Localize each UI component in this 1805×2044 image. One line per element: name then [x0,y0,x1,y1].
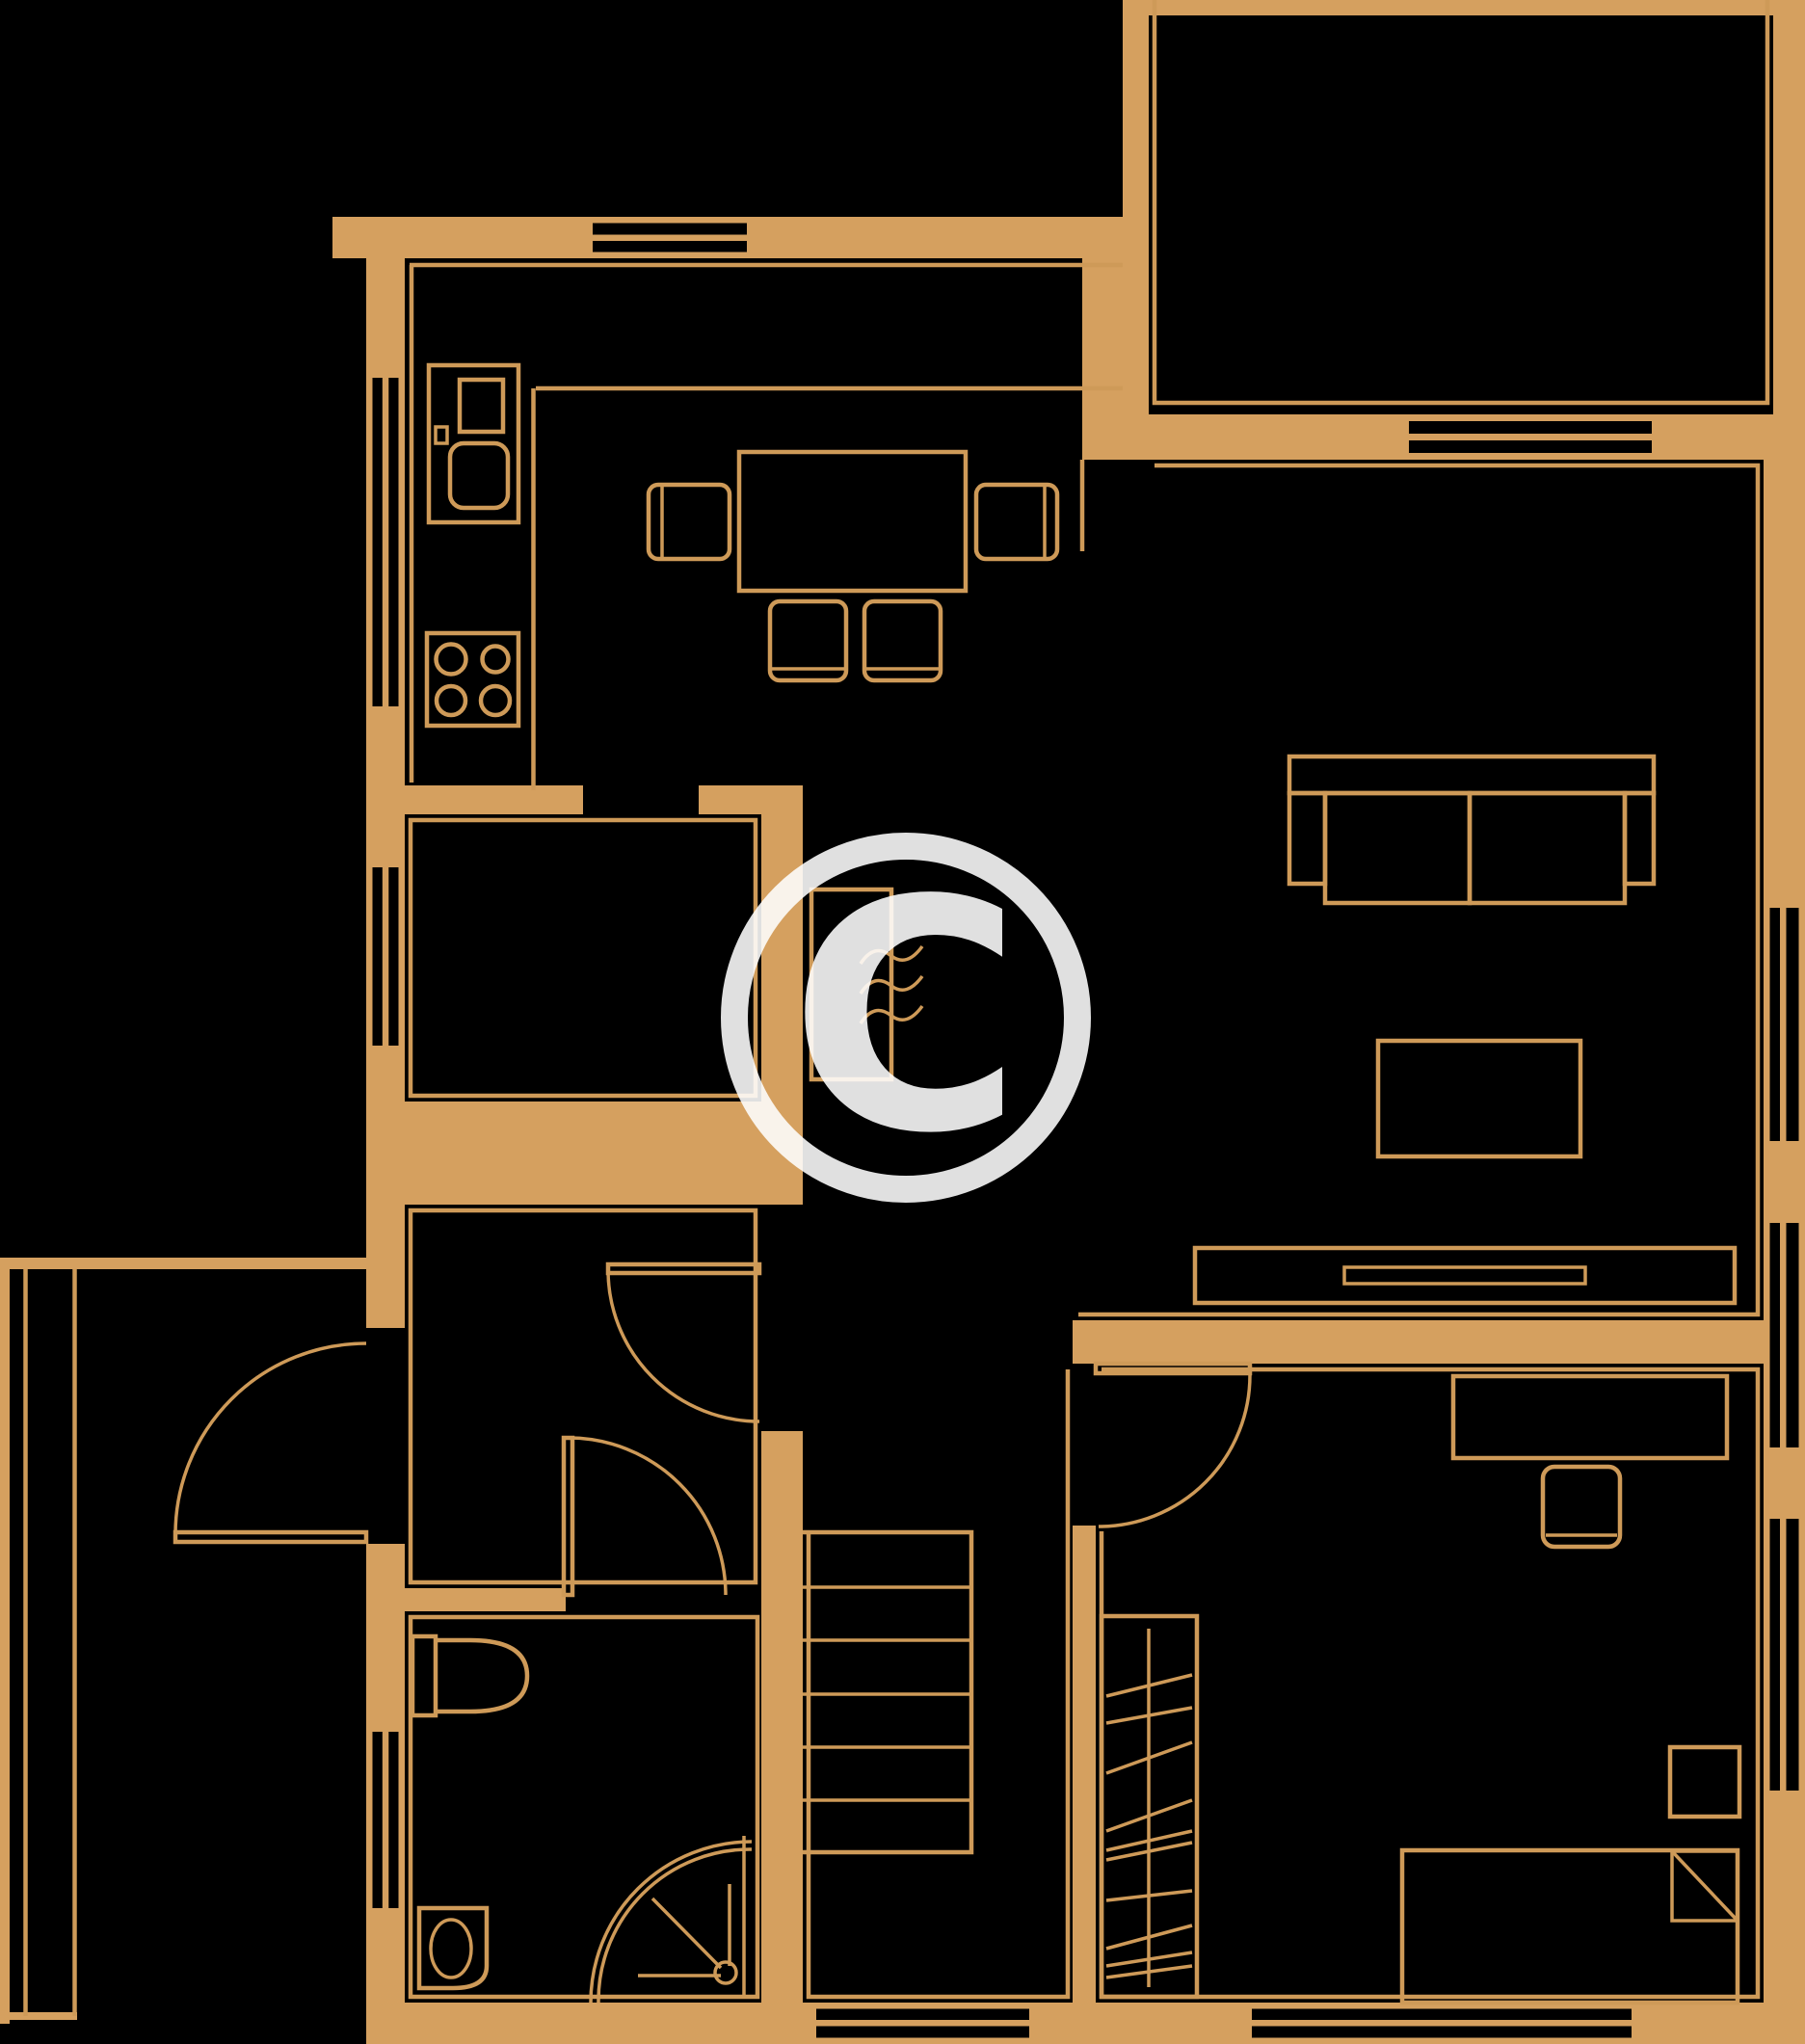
stove [427,633,518,726]
burner [483,647,509,673]
glazing-bar [1409,434,1652,440]
tv-console [1195,1248,1735,1303]
wall-bottom [1029,2003,1252,2044]
wall-right [1764,460,1805,908]
glazing-bar [1780,1519,1787,1791]
sofa-armrest-left [1289,793,1325,884]
glazing-bar [816,2003,1029,2009]
porch-outer-strip [0,1258,10,2024]
living-room-outline [1078,465,1758,1314]
dining-chair-left [649,485,730,559]
wall-right [1764,1447,1805,1519]
wardrobe [1102,1616,1197,1997]
burner [437,686,465,715]
wall-bottom [1632,2003,1805,2044]
window-right-1 [1764,908,1805,1141]
wall-left [366,1908,405,2044]
glazing-bar [593,217,747,224]
door-leaf [608,1264,759,1273]
floor-plan: C [0,0,1805,2044]
wall-left [366,706,405,867]
wall-balcony-top [1123,0,1805,15]
sink-basin [450,443,508,508]
wall-bathroom-top [405,1588,566,1611]
glazing-bar [1252,2020,1632,2027]
coffee-table [1378,1041,1580,1156]
glazing-bar [1764,908,1770,1141]
basin-bowl [431,1920,471,1978]
wall-right [1764,1141,1805,1223]
bathroom [412,1636,752,2003]
door-swing-arc [175,1343,366,1534]
wall-balcony-right [1773,0,1805,460]
glazing-bar [399,867,406,1046]
sofa-seat-right [1470,793,1625,903]
window-bottom-1 [816,2003,1029,2044]
bathroom-outline [411,1617,757,1997]
window-bathroom [366,1732,405,1908]
wall-bedroom-top [1073,1320,1764,1364]
burner [481,686,510,715]
door-leaf [175,1532,366,1542]
window-balcony [1409,414,1652,460]
door-leaf [564,1438,572,1595]
blanket-fold [1672,1851,1738,1921]
glazing-bar [1799,908,1805,1141]
toilet [412,1636,527,1715]
glazing-bar [1764,1223,1770,1447]
glazing-bar [383,1732,389,1908]
shower-hose [652,1898,721,1968]
tv-screen [1344,1267,1585,1284]
toilet-tank [412,1636,436,1715]
dining-set [649,452,1057,680]
corner-shower [591,1836,752,2003]
stairs [803,1532,971,1852]
window-bottom-2 [1252,2003,1632,2044]
burner [437,645,466,675]
wall-central-stub-lower [761,1431,803,2003]
dining-chair-right [976,485,1057,559]
glazing-bar [399,1732,406,1908]
kitchen-sink-unit [429,365,518,522]
glazing-bar [383,867,389,1046]
sofa-backrest [1289,757,1654,793]
tv-console-body [1195,1248,1735,1303]
desk-chair [1543,1467,1620,1547]
stair-treads [803,1587,971,1800]
bedside-table [1670,1747,1739,1817]
hallway-door [608,1264,759,1421]
sink-tap [436,427,447,443]
kitchen [427,365,1057,790]
upper-hall-outline [411,820,756,1096]
bed [1402,1850,1738,2003]
window-top [593,217,747,258]
glazing-bar [1780,908,1787,1141]
watermark-letter: C [789,833,1022,1203]
door-swing-arc [569,1438,726,1595]
sofa-armrest-right [1625,793,1654,884]
stairs-outline [803,1532,971,1852]
window-left-2 [366,867,405,1046]
shower-screen-arc [591,1842,752,2003]
wall-left [366,217,405,378]
shower-drain [715,1962,736,1983]
floor-plan-canvas: C [0,0,1805,2044]
wall-left [366,1544,405,1732]
sink-drainer [460,380,503,432]
dining-chair-bottom-2 [864,601,941,680]
dining-chair-bottom-1 [770,601,846,680]
bathroom-door [564,1438,726,1595]
entrance-door [175,1343,366,1542]
glazing-bar [1799,1223,1805,1447]
wall-balcony-bottom-b [1652,414,1773,460]
wall-kitchen-bottom-right [699,785,761,814]
wall-top-right [747,217,1149,258]
balcony-outline [1155,0,1767,403]
glazing-bar [366,1732,373,1908]
glazing-bar [593,235,747,242]
glazing-bar [1780,1223,1787,1447]
wall-balcony-bottom-a [1082,414,1409,460]
door-swing-arc [1099,1375,1250,1526]
glazing-bar [1409,453,1652,460]
window-right-3 [1764,1519,1805,1791]
bedroom-outline [1102,1369,1758,1997]
window-left-1 [366,378,405,706]
glazing-bar [816,2038,1029,2044]
wall-hall-block [366,1102,761,1205]
glazing-bar [399,378,406,706]
wall-bottom [405,2003,816,2044]
glazing-bar [1252,2038,1632,2044]
glazing-bar [1799,1519,1805,1791]
toilet-bowl [436,1640,527,1712]
glazing-bar [383,378,389,706]
bedroom-door [1096,1364,1250,1526]
sofa [1289,757,1654,903]
bed-frame [1402,1850,1738,2003]
wall-bedroom-left [1073,1526,1096,2003]
wall-porch-top [0,1258,366,1269]
stair-hall-outline [809,1369,1068,1997]
door-swing-arc [608,1270,759,1421]
glazing-bar [366,867,373,1046]
glazing-bar [816,2020,1029,2027]
desk [1453,1376,1727,1458]
glazing-bar [1409,414,1652,421]
wall-kitchen-bottom-left [405,785,583,814]
sofa-seat-left [1325,793,1470,903]
glazing-bar [1764,1519,1770,1791]
porch-bottom-cap [0,2012,77,2020]
washbasin [419,1908,487,1988]
dining-table [739,452,966,591]
window-right-2 [1764,1223,1805,1447]
porch-glazing-lines [26,1269,75,2016]
glazing-bar [366,378,373,706]
bedroom [1102,1376,1739,2003]
glazing-bar [593,252,747,259]
